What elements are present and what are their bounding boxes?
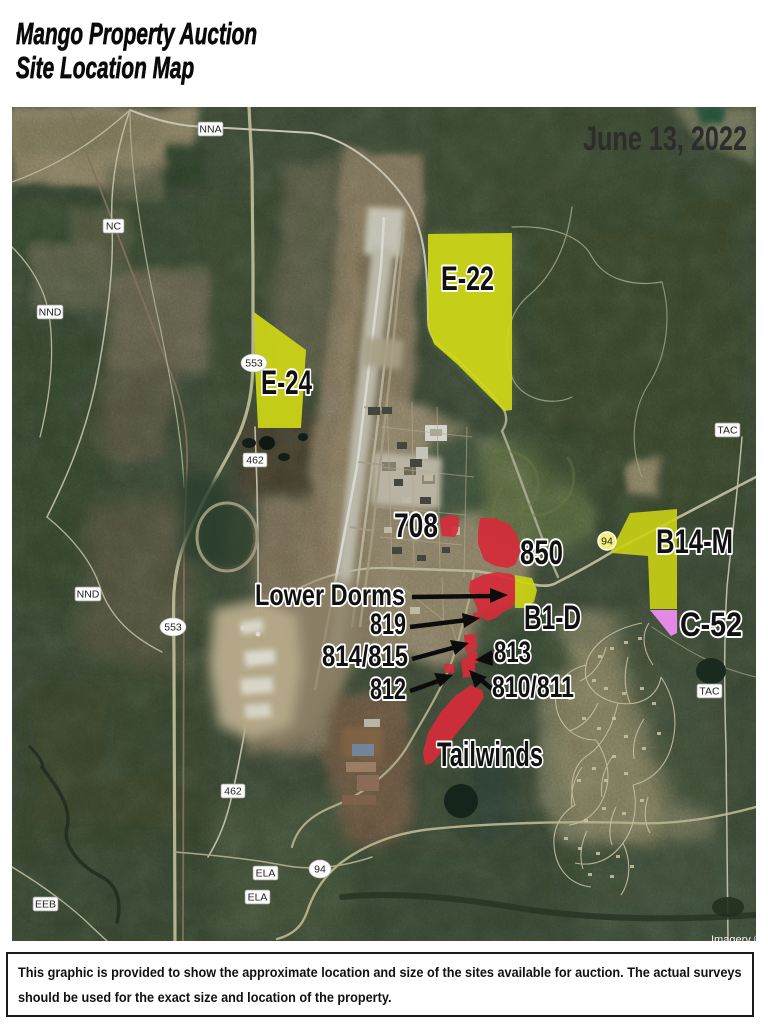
svg-text:812: 812 xyxy=(370,673,406,706)
svg-text:94: 94 xyxy=(314,864,326,876)
svg-text:E-22: E-22 xyxy=(441,260,494,298)
svg-text:ELA: ELA xyxy=(256,868,276,880)
svg-text:TAC: TAC xyxy=(699,686,720,698)
svg-text:850: 850 xyxy=(520,534,563,572)
svg-text:NNA: NNA xyxy=(199,124,221,136)
svg-text:814/815: 814/815 xyxy=(322,640,408,673)
svg-text:June 13, 2022: June 13, 2022 xyxy=(583,120,747,158)
svg-text:819: 819 xyxy=(370,608,406,641)
svg-text:EEB: EEB xyxy=(35,899,56,911)
svg-text:B1-D: B1-D xyxy=(524,599,581,637)
svg-text:553: 553 xyxy=(245,358,263,370)
svg-text:B14-M: B14-M xyxy=(656,523,733,561)
svg-text:NND: NND xyxy=(39,307,62,319)
svg-text:NND: NND xyxy=(77,589,100,601)
svg-text:813: 813 xyxy=(494,636,531,669)
svg-text:462: 462 xyxy=(246,455,264,467)
svg-text:ELA: ELA xyxy=(248,892,268,904)
svg-text:810/811: 810/811 xyxy=(492,671,574,704)
svg-text:Tailwinds: Tailwinds xyxy=(437,736,543,774)
svg-text:NC: NC xyxy=(106,221,122,233)
svg-text:C-52: C-52 xyxy=(680,606,742,644)
svg-text:708: 708 xyxy=(394,507,438,545)
svg-text:Imagery ©2: Imagery ©2 xyxy=(711,934,756,941)
svg-text:462: 462 xyxy=(224,786,242,798)
svg-text:94: 94 xyxy=(601,536,613,548)
svg-text:TAC: TAC xyxy=(717,425,738,437)
svg-text:553: 553 xyxy=(164,622,182,634)
svg-text:E-24: E-24 xyxy=(261,364,312,402)
